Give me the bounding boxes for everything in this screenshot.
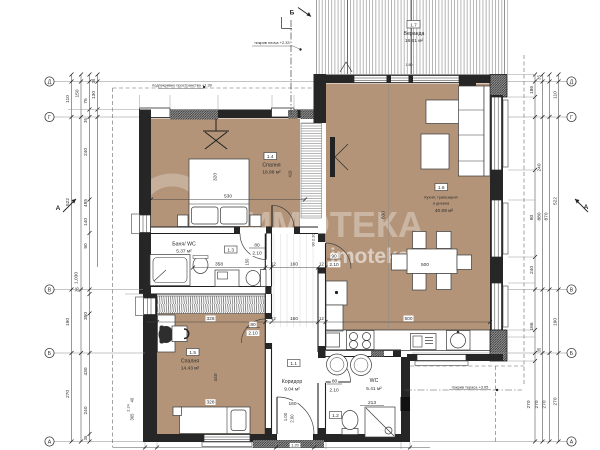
svg-text:880: 880 — [537, 212, 543, 220]
svg-text:1.20: 1.20 — [291, 442, 299, 447]
svg-text:270: 270 — [542, 400, 548, 408]
svg-text:240: 240 — [83, 406, 89, 414]
svg-text:Г: Г — [48, 115, 51, 121]
svg-text:90: 90 — [331, 254, 337, 260]
svg-text:Коридор: Коридор — [282, 379, 303, 385]
svg-text:80: 80 — [529, 215, 535, 221]
svg-text:Б: Б — [48, 351, 52, 357]
svg-text:140: 140 — [83, 218, 89, 226]
svg-text:160: 160 — [290, 262, 298, 268]
svg-text:240: 240 — [83, 148, 89, 156]
svg-text:160: 160 — [290, 316, 298, 322]
svg-text:Д: Д — [48, 79, 52, 85]
svg-text:2.10: 2.10 — [252, 251, 262, 257]
svg-text:12: 12 — [319, 262, 324, 267]
svg-text:830: 830 — [381, 211, 387, 219]
svg-text:Б: Б — [570, 351, 574, 357]
svg-text:2.10: 2.10 — [329, 388, 339, 394]
svg-text:80: 80 — [332, 379, 338, 385]
svg-text:430: 430 — [83, 367, 89, 375]
svg-text:1.5: 1.5 — [189, 350, 196, 356]
svg-text:Д: Д — [570, 79, 574, 85]
svg-text:1.6: 1.6 — [438, 185, 445, 191]
svg-text:Кухня, трапезария: Кухня, трапезария — [424, 195, 457, 200]
svg-text:18.98 м²: 18.98 м² — [262, 170, 281, 176]
svg-text:270: 270 — [65, 390, 71, 398]
svg-text:А: А — [570, 439, 574, 445]
svg-text:Баня/ WC: Баня/ WC — [172, 242, 196, 248]
svg-text:35: 35 — [83, 435, 88, 440]
svg-text:419: 419 — [288, 170, 293, 178]
svg-text:9.04 м²: 9.04 м² — [284, 387, 300, 393]
svg-text:35: 35 — [75, 287, 80, 292]
svg-text:12: 12 — [271, 262, 276, 267]
svg-text:166: 166 — [529, 322, 535, 330]
svg-text:35: 35 — [537, 75, 542, 80]
svg-text:А: А — [48, 439, 52, 445]
svg-text:2.10: 2.10 — [329, 262, 339, 268]
svg-text:подпокривно пространство +1.39: подпокривно пространство +1.39 — [152, 83, 212, 88]
svg-text:522: 522 — [553, 197, 559, 205]
svg-text:328: 328 — [206, 400, 214, 406]
svg-text:1.4: 1.4 — [267, 154, 274, 160]
svg-text:Б: Б — [290, 10, 295, 17]
svg-text:Г: Г — [570, 115, 573, 121]
svg-text:240: 240 — [529, 266, 535, 274]
svg-text:270: 270 — [553, 397, 559, 405]
svg-text:270: 270 — [534, 400, 540, 408]
svg-text:Спалня: Спалня — [262, 163, 280, 169]
svg-text:90 2.10: 90 2.10 — [311, 233, 316, 247]
svg-text:и дневна: и дневна — [433, 201, 450, 206]
svg-text:270: 270 — [526, 400, 532, 408]
svg-text:Спалня: Спалня — [181, 359, 199, 365]
svg-text:150: 150 — [245, 258, 250, 266]
svg-text:130: 130 — [91, 91, 97, 99]
svg-text:440: 440 — [213, 373, 219, 381]
svg-text:150: 150 — [75, 89, 81, 97]
svg-text:35: 35 — [537, 347, 542, 352]
svg-text:90: 90 — [83, 243, 89, 249]
svg-text:1.80: 1.80 — [406, 63, 413, 67]
svg-text:1,030: 1,030 — [74, 272, 80, 284]
svg-text:500: 500 — [404, 316, 412, 322]
svg-text:186: 186 — [529, 86, 535, 94]
svg-text:1.7: 1.7 — [410, 23, 417, 29]
svg-text:12: 12 — [319, 316, 324, 321]
svg-text:160: 160 — [288, 401, 296, 407]
svg-text:2.10: 2.10 — [248, 331, 258, 337]
svg-text:190: 190 — [553, 318, 559, 326]
svg-text:ИМОТЕКА: ИМОТЕКА — [246, 204, 424, 245]
svg-text:35: 35 — [91, 78, 96, 83]
svg-text:110: 110 — [553, 91, 559, 99]
svg-text:110: 110 — [65, 95, 71, 103]
svg-text:328: 328 — [206, 316, 214, 322]
svg-text:5.41 м²: 5.41 м² — [366, 386, 382, 392]
svg-text:покрив тераса +3.05: покрив тераса +3.05 — [452, 385, 489, 390]
svg-text:2.24: 2.24 — [126, 403, 131, 411]
svg-text:Веранда: Веранда — [404, 31, 425, 37]
svg-text:190: 190 — [65, 318, 71, 326]
svg-text:358: 358 — [215, 262, 223, 268]
svg-text:35: 35 — [83, 118, 88, 123]
svg-text:12: 12 — [271, 316, 276, 321]
svg-text:покрив плоча +2.33: покрив плоча +2.33 — [254, 40, 289, 45]
svg-text:350: 350 — [83, 312, 89, 320]
svg-text:320: 320 — [213, 173, 219, 181]
svg-text:2.00: 2.00 — [290, 414, 295, 423]
svg-text:5.37 м²: 5.37 м² — [176, 249, 192, 255]
svg-text:500: 500 — [421, 262, 429, 268]
svg-text:80: 80 — [250, 322, 256, 328]
svg-text:530: 530 — [224, 194, 232, 200]
svg-text:213: 213 — [368, 400, 376, 406]
svg-text:240: 240 — [537, 163, 543, 171]
svg-text:40: 40 — [130, 397, 135, 402]
svg-text:14.43 м²: 14.43 м² — [181, 366, 200, 372]
svg-text:365: 365 — [130, 413, 135, 421]
svg-text:40.09 м²: 40.09 м² — [435, 208, 454, 214]
svg-text:1.2: 1.2 — [332, 413, 339, 419]
svg-text:В: В — [570, 287, 574, 293]
svg-text:1.00: 1.00 — [283, 412, 288, 421]
svg-text:35: 35 — [152, 316, 156, 321]
svg-text:870: 870 — [544, 212, 550, 220]
svg-text:1.1: 1.1 — [290, 361, 297, 367]
svg-text:В: В — [48, 287, 52, 293]
svg-text:75: 75 — [83, 98, 89, 104]
svg-text:18.61 м²: 18.61 м² — [405, 38, 424, 44]
svg-text:WC: WC — [370, 378, 379, 384]
svg-text:А: А — [56, 205, 61, 212]
svg-text:1.3: 1.3 — [227, 248, 234, 254]
svg-text:80: 80 — [254, 242, 260, 248]
svg-text:495: 495 — [83, 199, 89, 207]
